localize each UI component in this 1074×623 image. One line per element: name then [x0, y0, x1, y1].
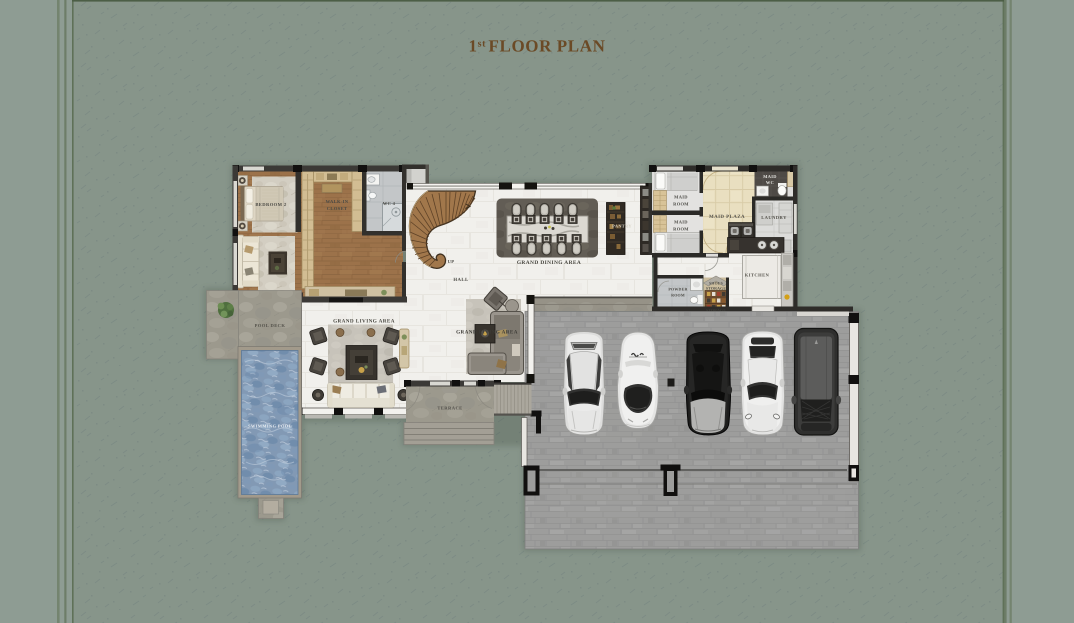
svg-text:1stFLOOR PLAN: 1stFLOOR PLAN [468, 36, 605, 55]
svg-text:WC 4: WC 4 [383, 201, 396, 206]
svg-text:ROOM: ROOM [673, 226, 689, 231]
svg-text:KITCHEN: KITCHEN [745, 272, 770, 277]
svg-text:LAUNDRY: LAUNDRY [761, 215, 787, 220]
svg-text:UP: UP [448, 259, 455, 264]
svg-text:CLOSET: CLOSET [327, 206, 347, 211]
svg-text:HALL: HALL [453, 277, 468, 283]
svg-text:GRAND DINING AREA: GRAND DINING AREA [517, 260, 581, 266]
svg-text:SHOES: SHOES [709, 281, 723, 285]
svg-text:WC: WC [766, 180, 774, 185]
svg-text:STORAGE: STORAGE [706, 287, 727, 291]
svg-text:POWDER: POWDER [668, 286, 687, 291]
svg-text:ROOM: ROOM [673, 201, 689, 206]
svg-text:MAID: MAID [674, 219, 688, 224]
svg-text:GRAND LIVING AREA: GRAND LIVING AREA [333, 318, 395, 324]
svg-text:GRAND LIVING AREA: GRAND LIVING AREA [456, 329, 518, 335]
svg-text:MAID: MAID [763, 174, 776, 179]
svg-text:SWIMMING POOL: SWIMMING POOL [248, 423, 292, 428]
svg-text:MAID: MAID [674, 194, 688, 199]
svg-text:ROOM: ROOM [671, 292, 685, 297]
svg-text:BEDROOM 2: BEDROOM 2 [255, 202, 287, 207]
svg-text:TERRACE: TERRACE [437, 405, 462, 410]
svg-text:POOL DECK: POOL DECK [255, 323, 286, 328]
svg-text:WALK-IN: WALK-IN [326, 199, 349, 204]
svg-text:PANTRY: PANTRY [612, 223, 632, 228]
svg-text:MAID PLAZA: MAID PLAZA [709, 214, 745, 220]
